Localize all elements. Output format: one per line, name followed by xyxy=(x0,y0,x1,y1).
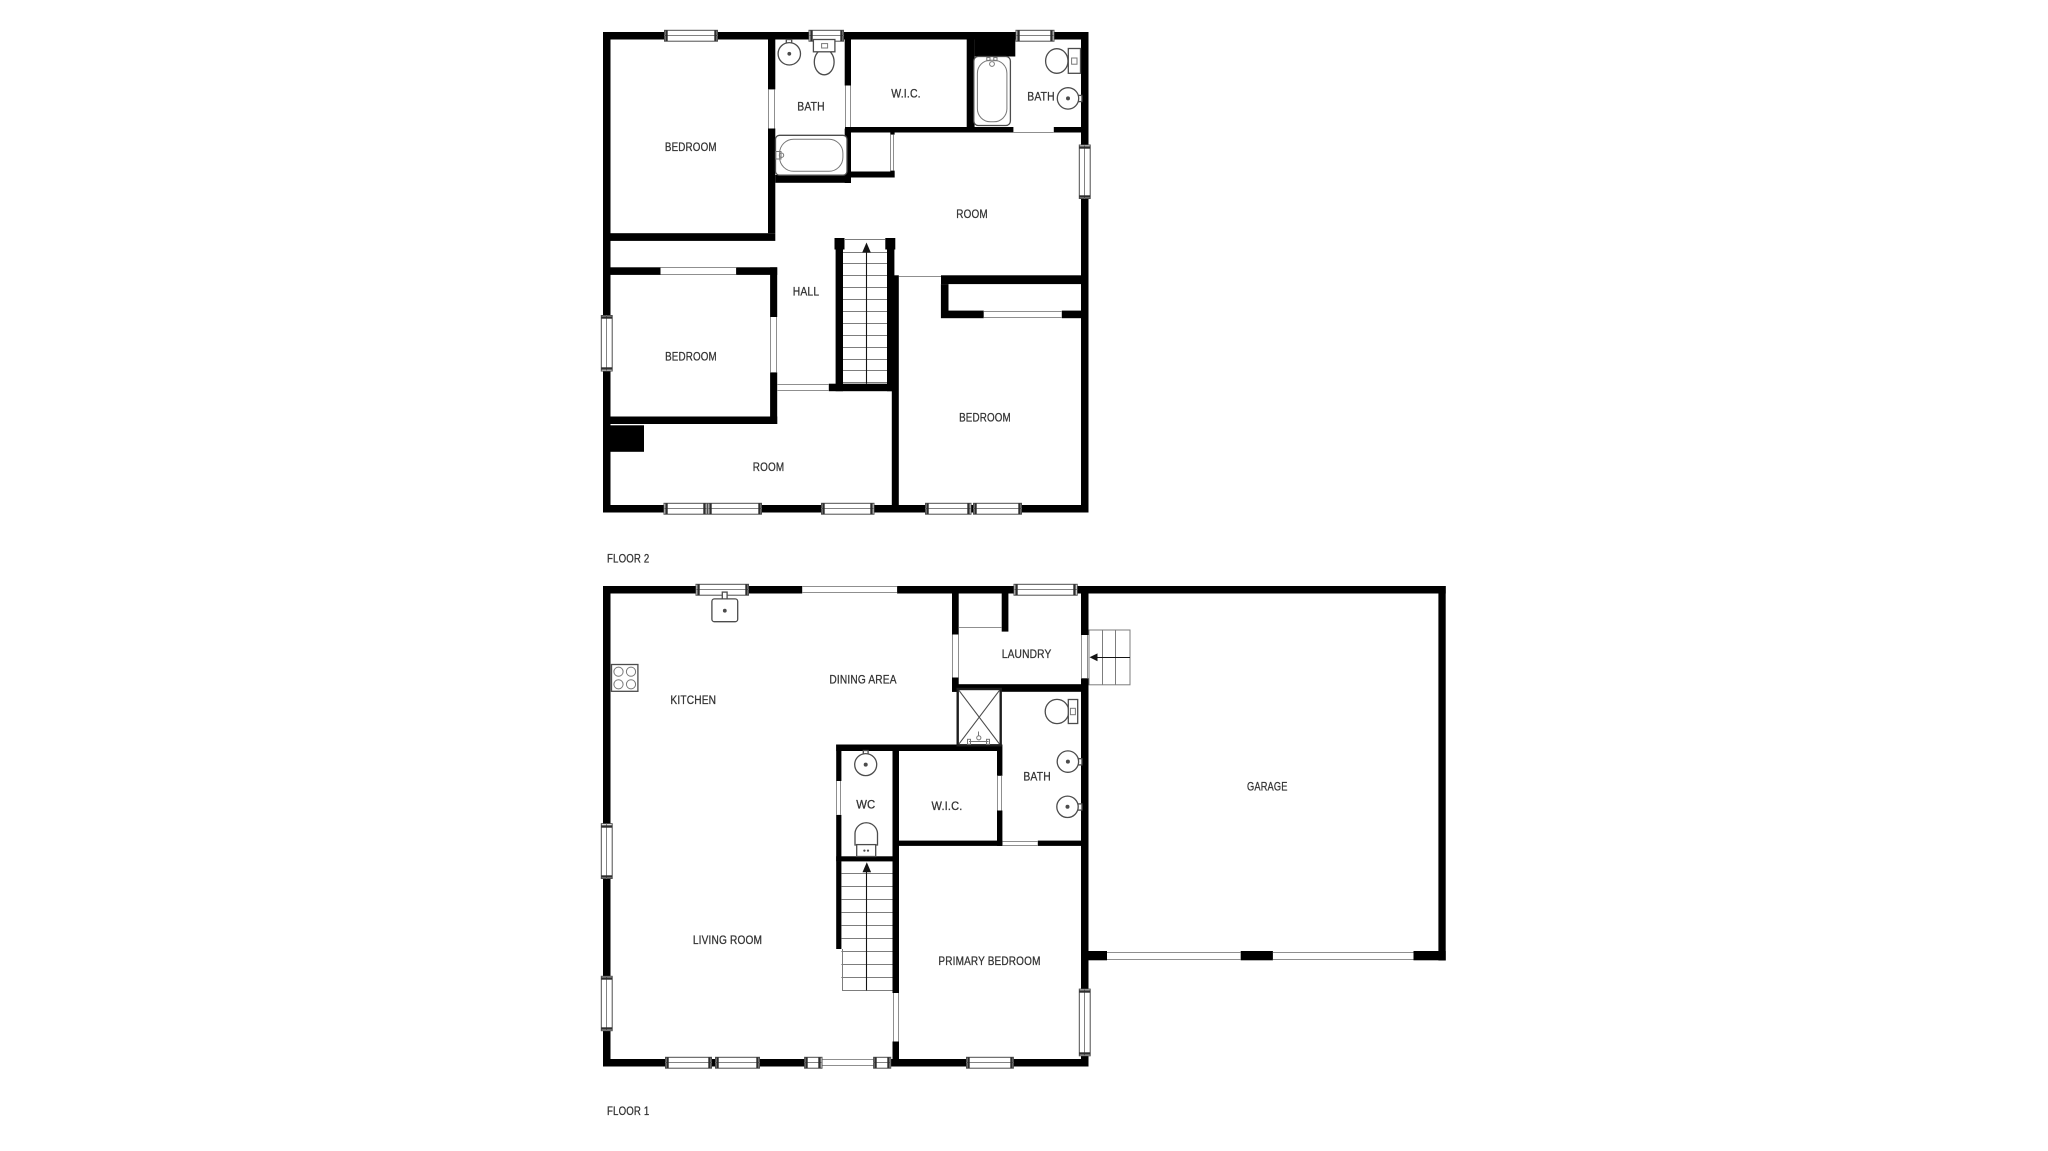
svg-text:BATH: BATH xyxy=(797,100,825,114)
svg-text:ROOM: ROOM xyxy=(753,460,785,474)
svg-text:W.I.C.: W.I.C. xyxy=(891,87,921,101)
svg-text:BATH: BATH xyxy=(1027,90,1055,104)
svg-text:W.I.C.: W.I.C. xyxy=(932,799,963,813)
svg-text:WC: WC xyxy=(856,798,875,812)
svg-text:KITCHEN: KITCHEN xyxy=(670,693,716,707)
svg-text:HALL: HALL xyxy=(793,285,820,299)
svg-text:ROOM: ROOM xyxy=(956,207,988,221)
svg-text:LAUNDRY: LAUNDRY xyxy=(1002,647,1052,661)
svg-text:PRIMARY BEDROOM: PRIMARY BEDROOM xyxy=(938,954,1040,968)
svg-text:BEDROOM: BEDROOM xyxy=(665,349,717,363)
svg-text:BATH: BATH xyxy=(1023,770,1051,784)
svg-text:BEDROOM: BEDROOM xyxy=(665,140,717,154)
svg-text:GARAGE: GARAGE xyxy=(1247,779,1288,793)
svg-text:BEDROOM: BEDROOM xyxy=(959,411,1011,425)
svg-text:DINING AREA: DINING AREA xyxy=(829,673,897,687)
svg-text:LIVING ROOM: LIVING ROOM xyxy=(693,933,762,947)
svg-text:FLOOR 2: FLOOR 2 xyxy=(607,552,649,566)
svg-text:FLOOR 1: FLOOR 1 xyxy=(607,1104,649,1118)
